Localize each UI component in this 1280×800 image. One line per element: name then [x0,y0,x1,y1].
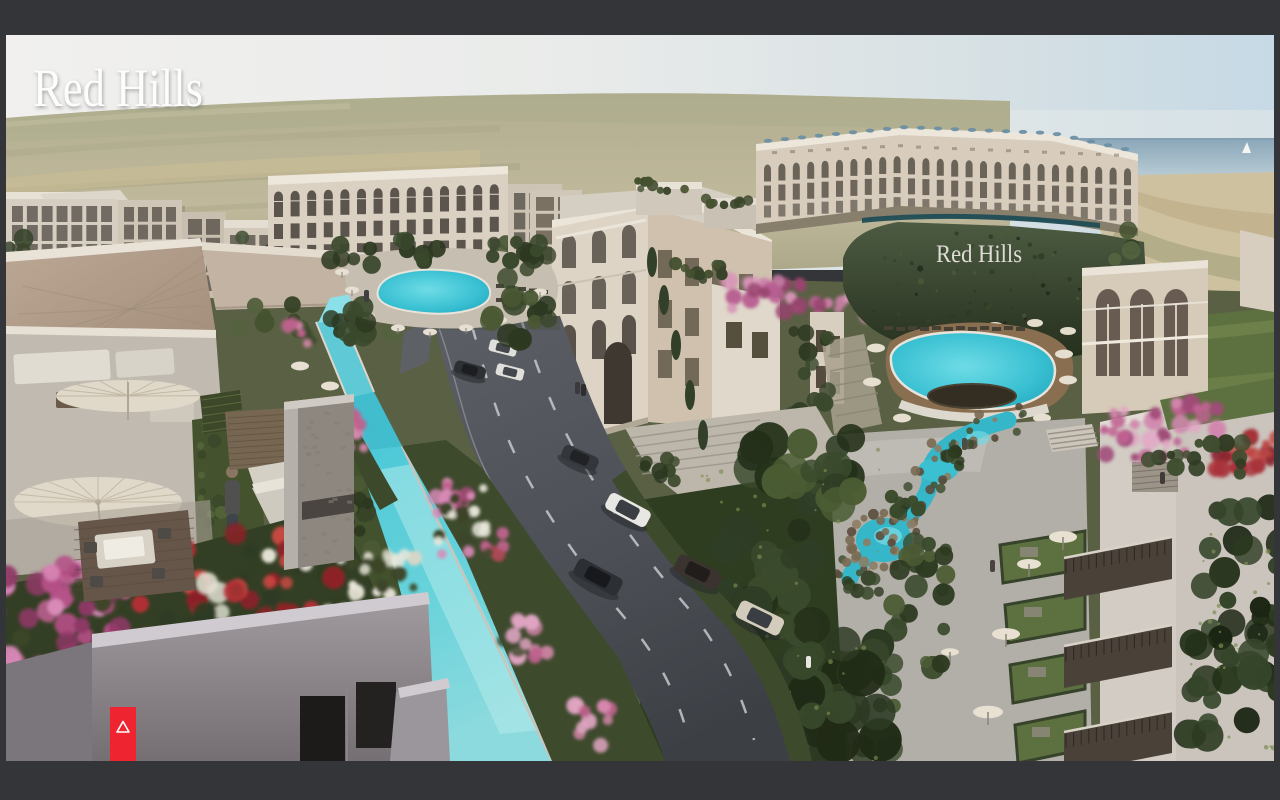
svg-text:Red Hills: Red Hills [33,58,203,118]
svg-text:Red Hills: Red Hills [936,241,1022,268]
